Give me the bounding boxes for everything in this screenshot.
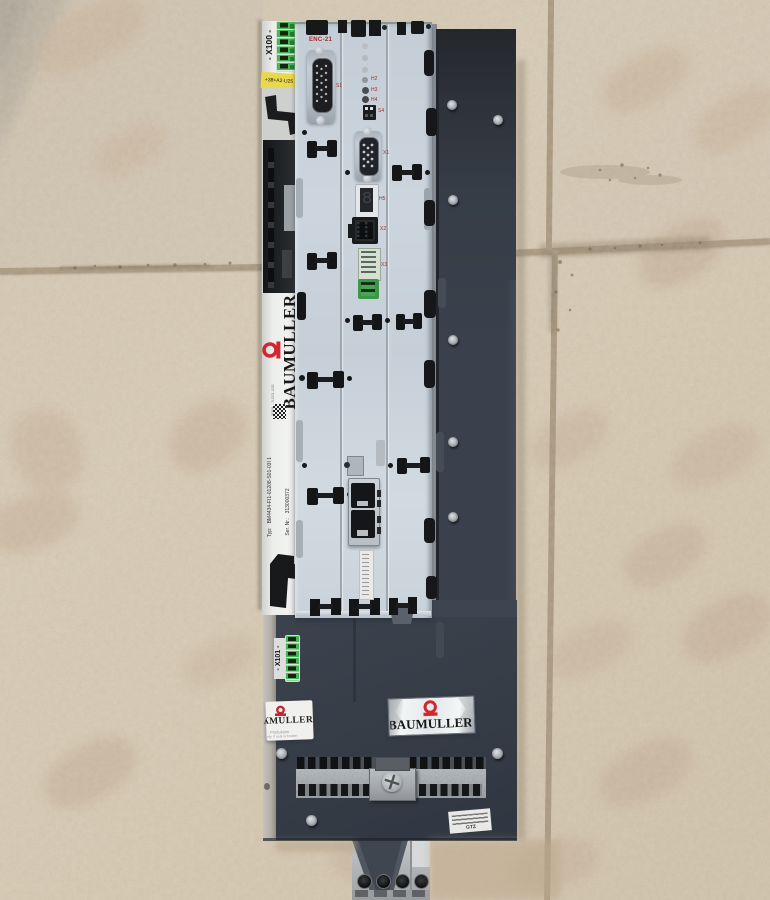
svg-text:BAUMULLER: BAUMULLER <box>389 715 471 733</box>
